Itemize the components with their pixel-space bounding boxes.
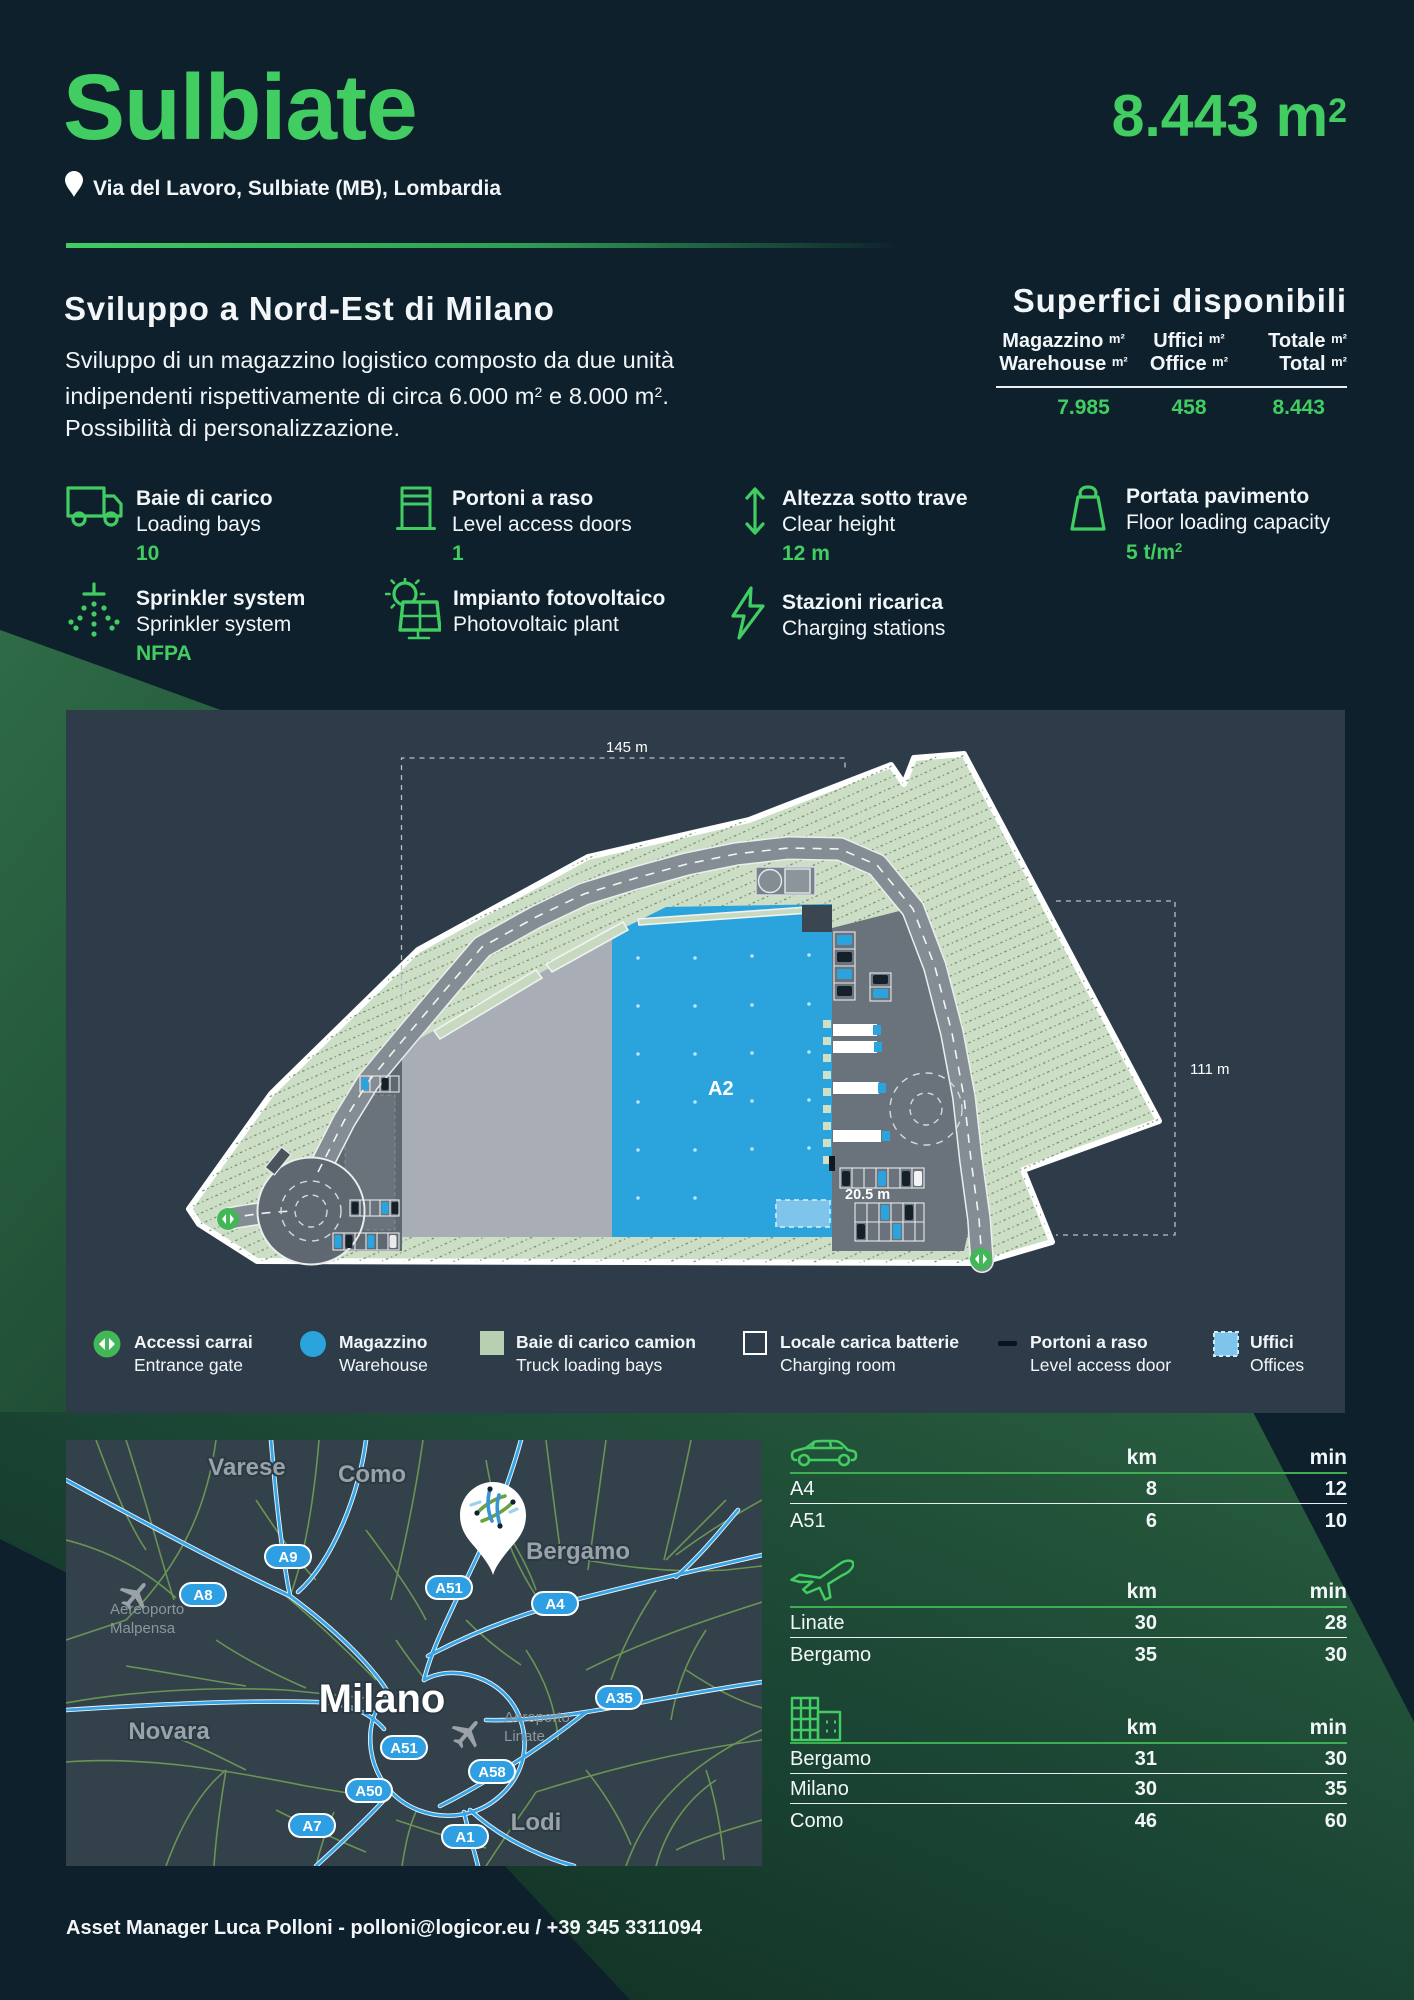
svg-text:A7: A7 (302, 1818, 321, 1835)
svg-text:A58: A58 (478, 1764, 506, 1781)
svg-text:A35: A35 (605, 1690, 633, 1707)
svg-text:A2: A2 (708, 1078, 734, 1100)
svg-text:A51: A51 (435, 1580, 463, 1597)
svg-text:Aereoporto: Aereoporto (110, 1601, 184, 1618)
svg-text:Malpensa: Malpensa (110, 1620, 176, 1637)
svg-text:Aeroporto: Aeroporto (504, 1709, 570, 1726)
svg-text:A9: A9 (278, 1549, 297, 1566)
svg-text:A8: A8 (193, 1587, 212, 1604)
svg-text:A4: A4 (545, 1596, 565, 1613)
svg-text:145 m: 145 m (606, 739, 648, 756)
svg-text:A50: A50 (355, 1783, 383, 1800)
svg-text:Milano: Milano (319, 1677, 446, 1721)
svg-text:Varese: Varese (208, 1454, 285, 1481)
svg-text:A1: A1 (455, 1829, 474, 1846)
svg-text:Como: Como (338, 1461, 406, 1488)
svg-text:Lodi: Lodi (511, 1809, 562, 1836)
svg-text:Linate: Linate (504, 1728, 545, 1745)
svg-text:111 m: 111 m (1190, 1061, 1229, 1078)
svg-text:Novara: Novara (128, 1718, 210, 1745)
svg-text:A51: A51 (390, 1740, 418, 1757)
svg-text:20.5 m: 20.5 m (845, 1187, 890, 1203)
svg-text:Bergamo: Bergamo (526, 1538, 630, 1565)
